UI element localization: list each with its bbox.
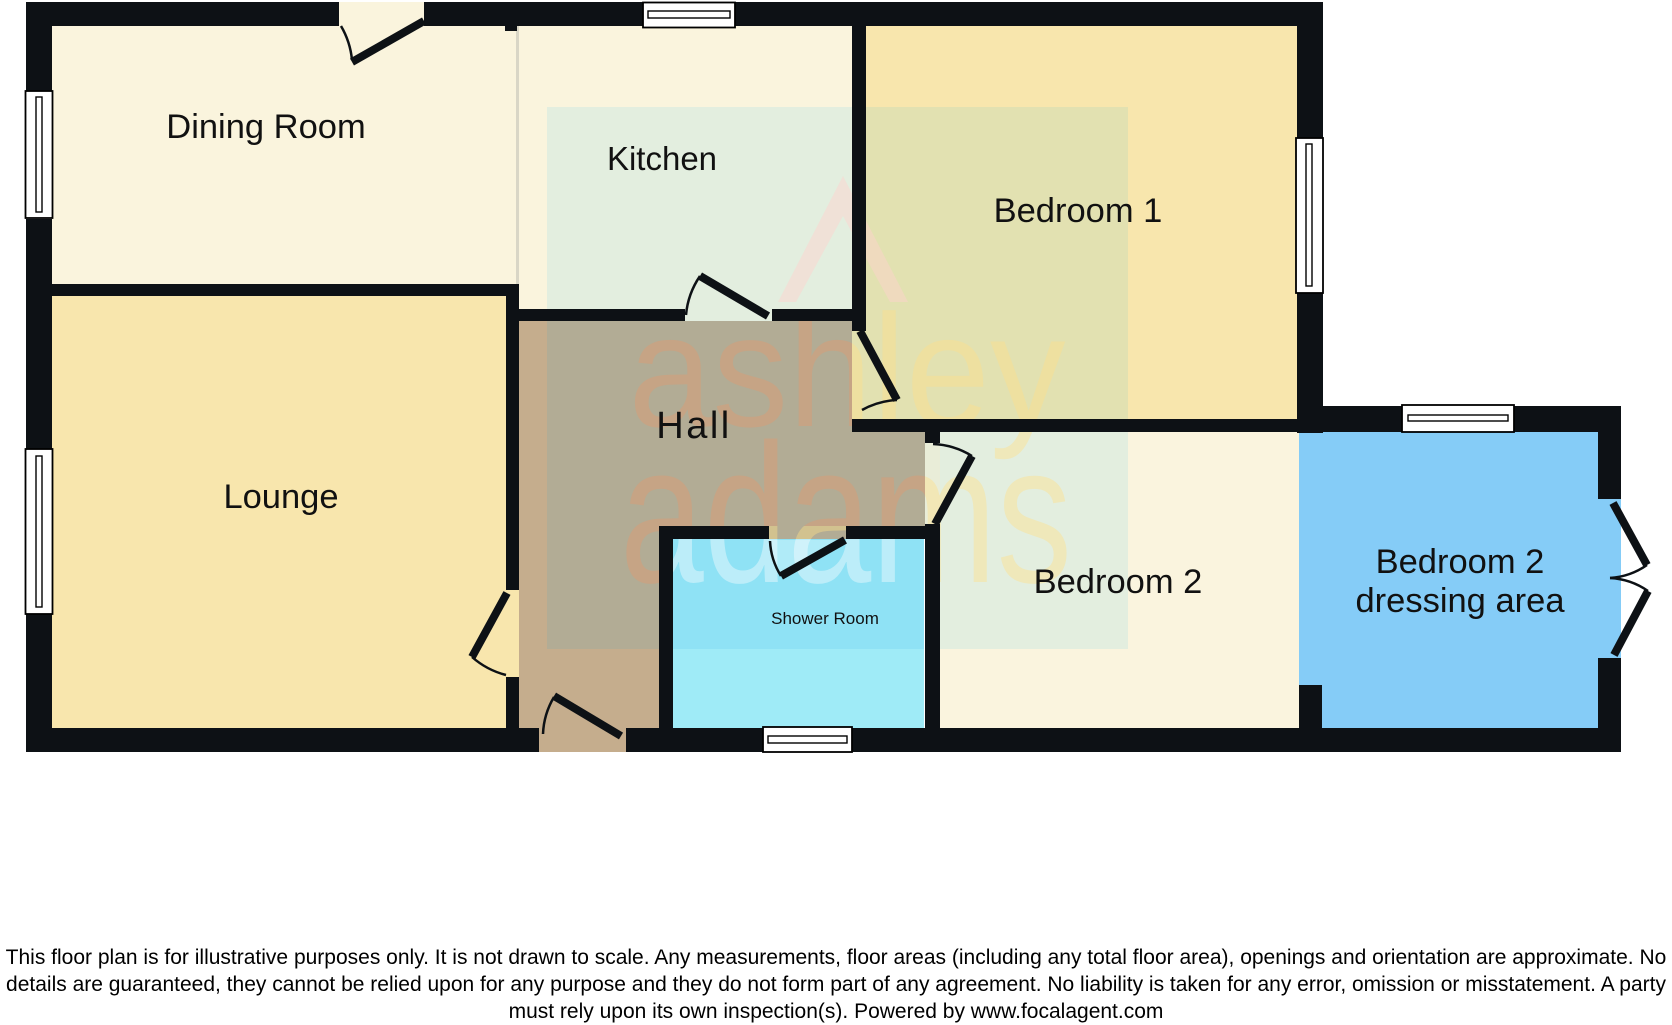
svg-text:Shower Room: Shower Room — [771, 609, 879, 628]
svg-text:dressing area: dressing area — [1355, 582, 1565, 620]
svg-text:Kitchen: Kitchen — [607, 140, 717, 177]
svg-text:Bedroom 1: Bedroom 1 — [994, 192, 1163, 230]
svg-text:Hall: Hall — [656, 405, 731, 447]
svg-text:Dining Room: Dining Room — [166, 108, 365, 146]
svg-text:Lounge: Lounge — [223, 478, 338, 516]
svg-text:Bedroom 2: Bedroom 2 — [1034, 563, 1203, 601]
svg-text:Bedroom 2: Bedroom 2 — [1376, 543, 1545, 581]
